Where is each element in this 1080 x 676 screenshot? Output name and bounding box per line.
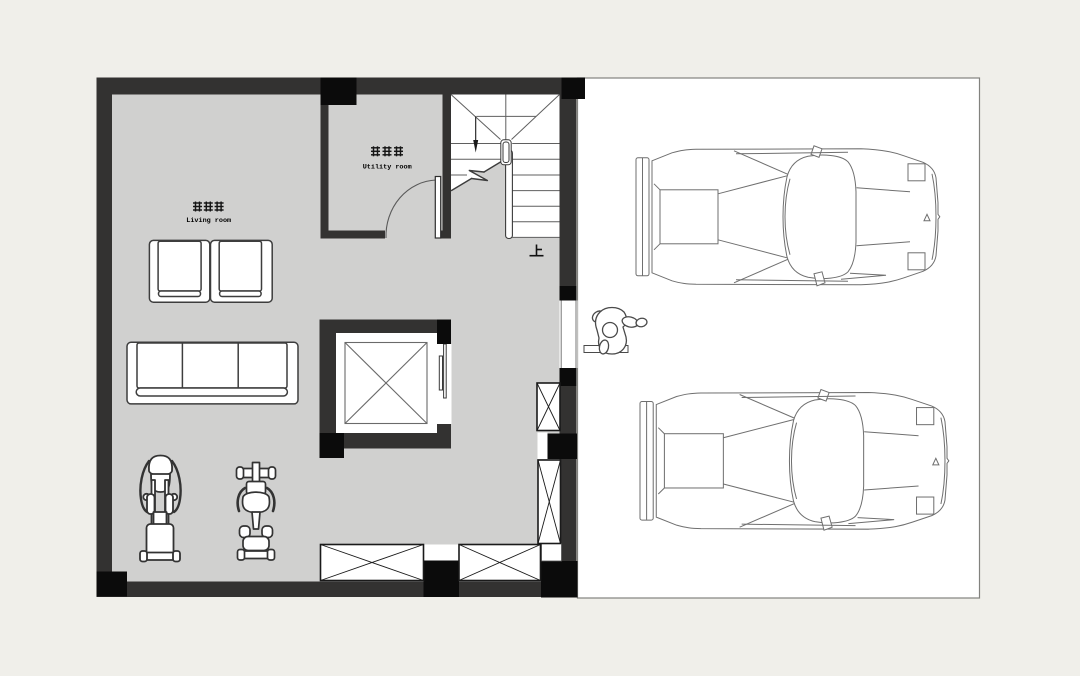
svg-text:Utility room: Utility room: [363, 163, 412, 171]
svg-text:Living room: Living room: [186, 217, 231, 225]
